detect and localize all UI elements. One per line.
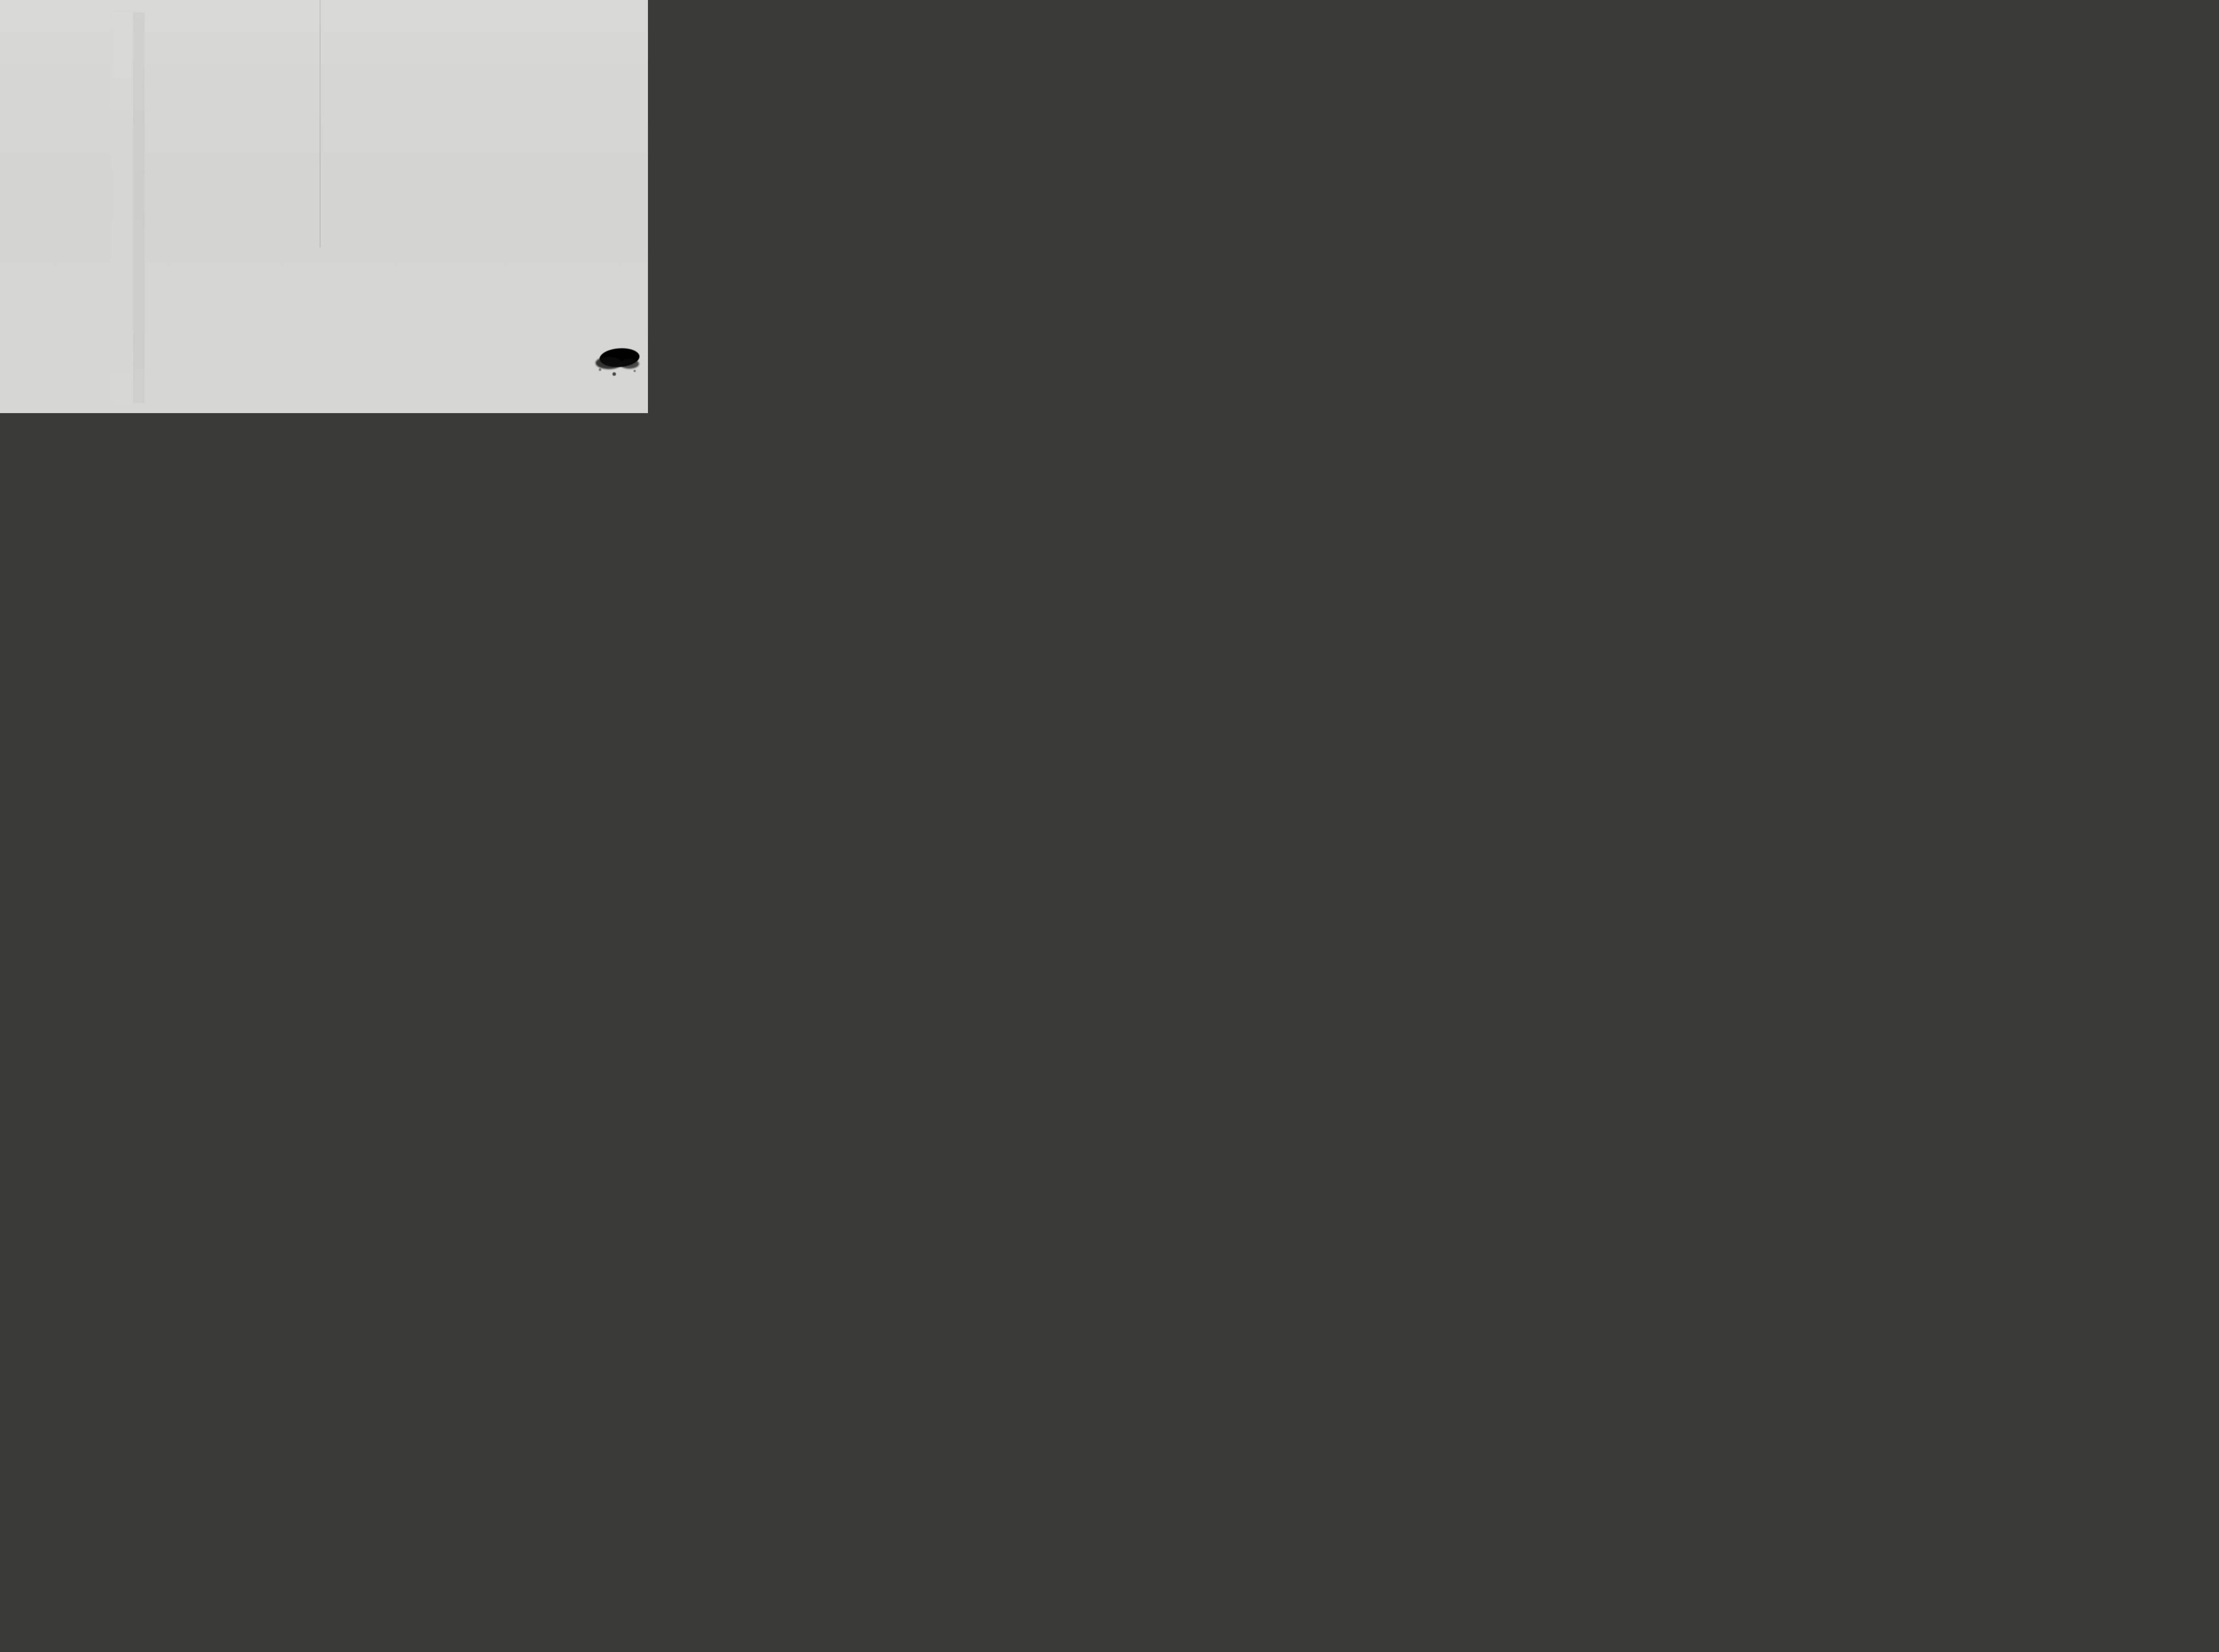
paper-background	[0, 0, 648, 413]
film-crease-line	[320, 0, 321, 248]
paper-streak-light	[112, 12, 131, 403]
scanned-chart-page	[0, 0, 648, 413]
paper-streak-dark	[133, 12, 145, 403]
polar-chart-canvas	[0, 0, 648, 413]
